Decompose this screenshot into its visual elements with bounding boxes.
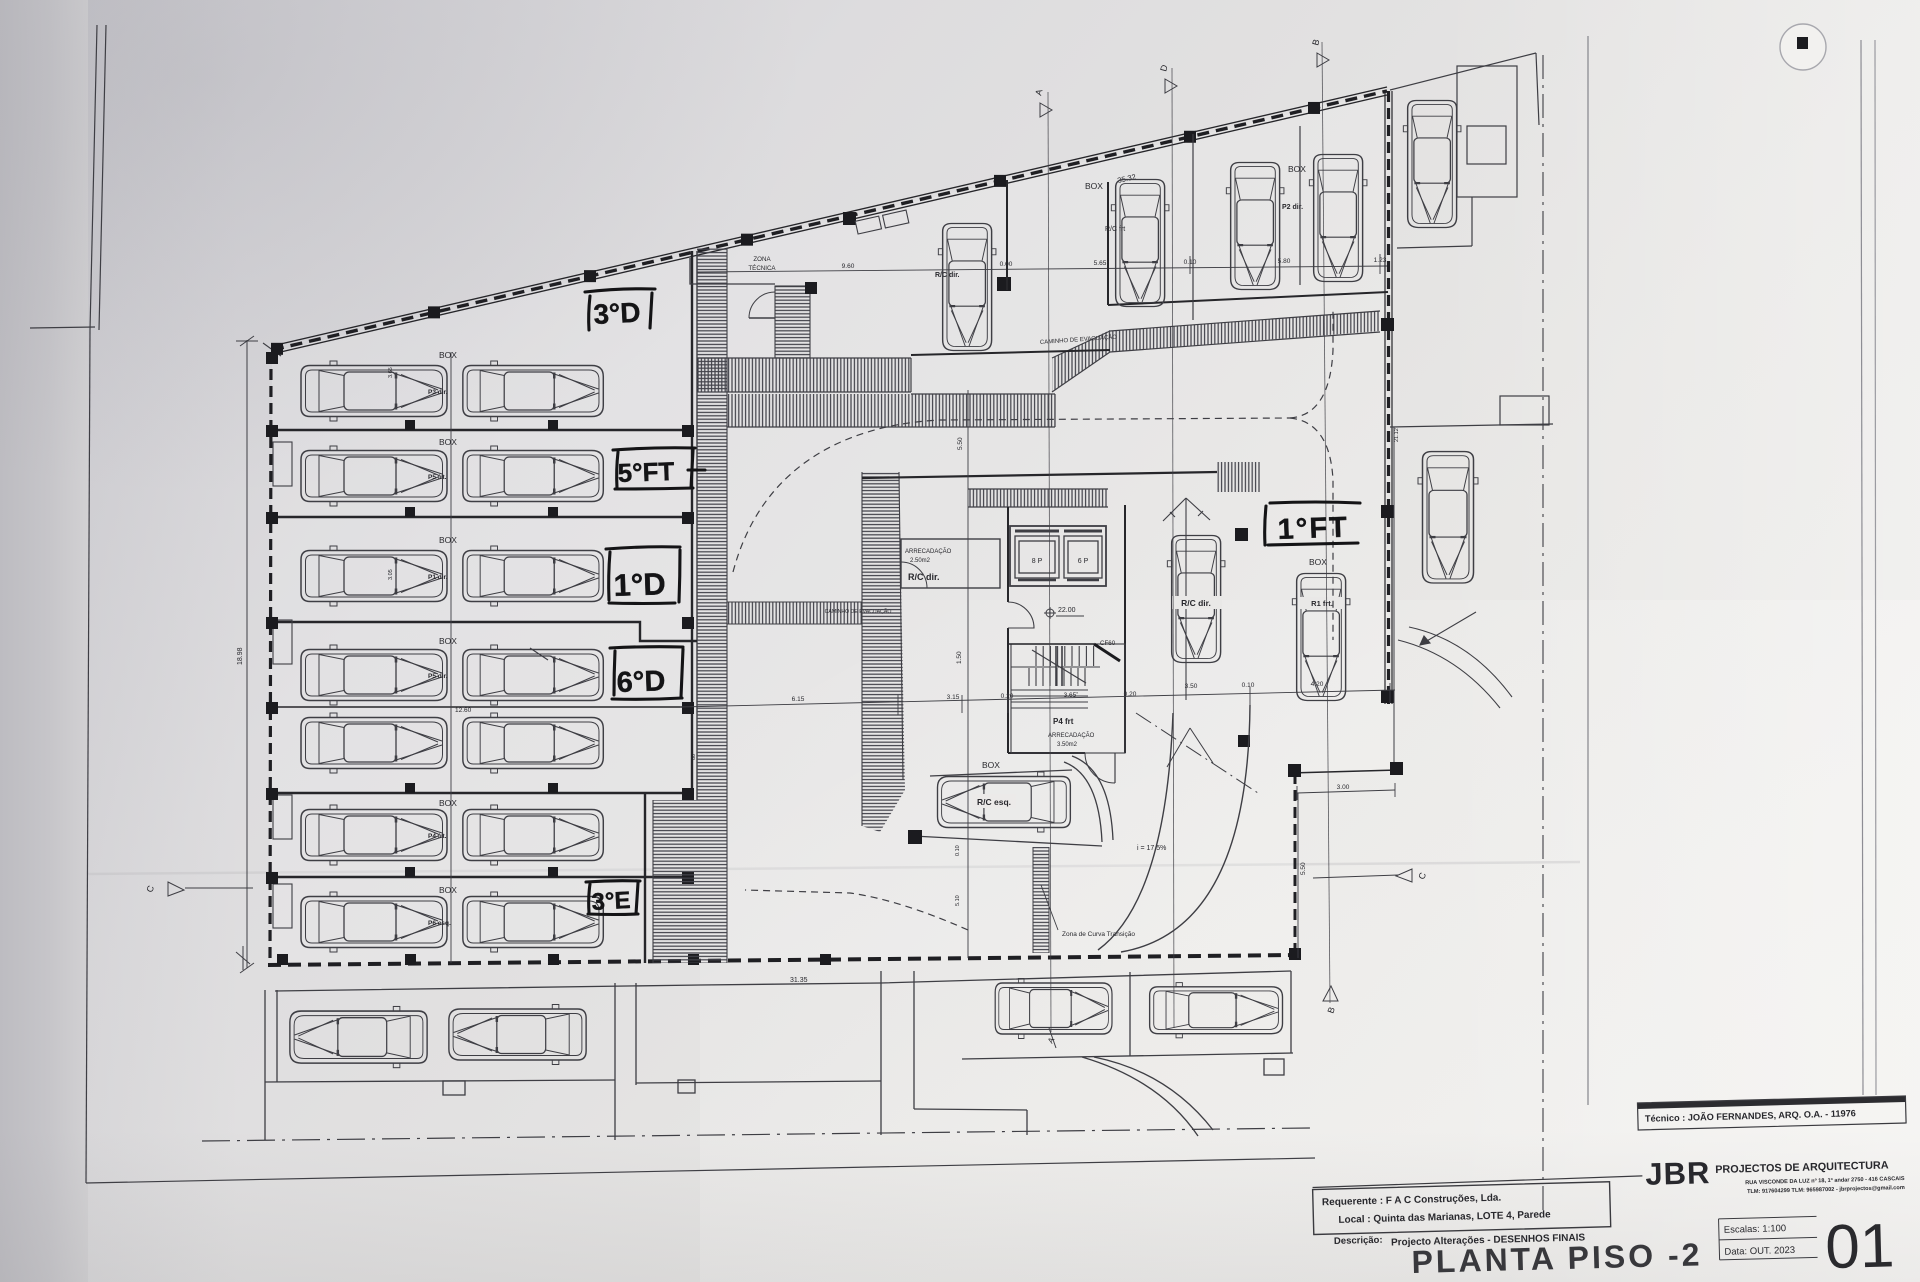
svg-text:5°FT: 5°FT (617, 456, 675, 488)
svg-text:3.05: 3.05 (388, 569, 394, 580)
svg-text:3.50: 3.50 (1185, 683, 1198, 690)
svg-text:3.00: 3.00 (1337, 784, 1350, 791)
svg-text:i = 17.5%: i = 17.5% (1137, 845, 1166, 852)
svg-text:PLANTA PISO -2: PLANTA PISO -2 (1411, 1236, 1703, 1280)
svg-text:1°D: 1°D (613, 566, 666, 603)
svg-text:0.20: 0.20 (1001, 693, 1014, 700)
svg-text:JBR: JBR (1645, 1155, 1711, 1192)
svg-text:CF60: CF60 (1100, 640, 1116, 647)
svg-text:ARRECADAÇÃO: ARRECADAÇÃO (905, 548, 952, 555)
svg-text:P4 frt.: P4 frt. (428, 833, 447, 840)
svg-text:BOX: BOX (439, 885, 457, 895)
svg-text:80: 80 (691, 754, 697, 760)
svg-text:1.50: 1.50 (956, 651, 963, 664)
svg-text:01: 01 (1824, 1211, 1895, 1282)
svg-text:P6 esq.: P6 esq. (428, 920, 451, 927)
svg-text:5.50: 5.50 (1300, 862, 1307, 875)
svg-text:BOX: BOX (982, 760, 1000, 770)
svg-text:Descrição:: Descrição: (1334, 1235, 1383, 1247)
svg-text:3.15: 3.15 (947, 694, 960, 701)
svg-text:31.35: 31.35 (790, 977, 808, 984)
svg-text:3.65˚: 3.65˚ (1064, 691, 1079, 699)
svg-text:BOX: BOX (439, 798, 457, 808)
svg-text:3.50m2: 3.50m2 (1057, 742, 1078, 748)
svg-text:22.00: 22.00 (1058, 607, 1076, 614)
svg-text:R/C dir.: R/C dir. (1181, 598, 1211, 608)
svg-text:BOX: BOX (1309, 557, 1327, 567)
svg-text:0.20: 0.20 (1124, 691, 1137, 698)
svg-text:Zona de Curva Transição: Zona de Curva Transição (1062, 931, 1135, 938)
svg-text:6°D: 6°D (616, 665, 666, 699)
svg-text:6.15: 6.15 (792, 696, 805, 703)
svg-text:0.10: 0.10 (1242, 682, 1255, 689)
svg-text:ARRECADAÇÃO: ARRECADAÇÃO (1048, 732, 1095, 739)
svg-text:Escalas: 1:100: Escalas: 1:100 (1724, 1223, 1787, 1236)
svg-text:P5 frt.: P5 frt. (428, 474, 447, 481)
svg-text:R/C dir.: R/C dir. (908, 572, 940, 582)
svg-text:3°E: 3°E (591, 887, 631, 916)
svg-text:1°FT: 1°FT (1277, 512, 1349, 546)
svg-text:3°D: 3°D (593, 297, 642, 330)
svg-text:R/C frt: R/C frt (1105, 226, 1125, 233)
svg-text:P5 dir.: P5 dir. (428, 673, 448, 680)
svg-text:BOX: BOX (439, 350, 457, 360)
svg-text:5.65: 5.65 (1094, 260, 1107, 267)
svg-text:BOX: BOX (439, 636, 457, 646)
svg-text:8 P: 8 P (1032, 558, 1043, 565)
svg-text:18.98: 18.98 (237, 647, 244, 665)
svg-text:12.60: 12.60 (455, 707, 472, 714)
svg-text:BOX: BOX (1085, 181, 1103, 191)
svg-text:R1 frt.: R1 frt. (1311, 599, 1333, 608)
svg-text:BOX: BOX (439, 535, 457, 545)
svg-text:4.20: 4.20 (1311, 681, 1324, 688)
svg-text:P4 frt: P4 frt (1053, 717, 1074, 726)
svg-text:6 P: 6 P (1078, 558, 1089, 565)
svg-text:2.50m2: 2.50m2 (910, 558, 931, 564)
svg-text:ZONA: ZONA (753, 256, 771, 263)
svg-text:Data: OUT. 2023: Data: OUT. 2023 (1724, 1245, 1795, 1258)
svg-text:P1 dir.: P1 dir. (428, 574, 448, 581)
svg-text:BOX: BOX (439, 437, 457, 447)
svg-text:P3 dir.: P3 dir. (428, 389, 448, 396)
svg-text:0.10: 0.10 (955, 845, 961, 856)
svg-text:0.10: 0.10 (1184, 259, 1197, 266)
svg-text:P2 dir.: P2 dir. (1282, 204, 1303, 211)
svg-text:BOX: BOX (1288, 164, 1306, 174)
svg-text:R/C esq.: R/C esq. (977, 797, 1011, 807)
svg-text:3.65: 3.65 (388, 367, 394, 378)
svg-text:5.10: 5.10 (955, 895, 961, 906)
svg-text:5.50: 5.50 (957, 437, 964, 450)
svg-text:21.12: 21.12 (1394, 428, 1400, 442)
svg-text:9.60: 9.60 (842, 263, 855, 270)
